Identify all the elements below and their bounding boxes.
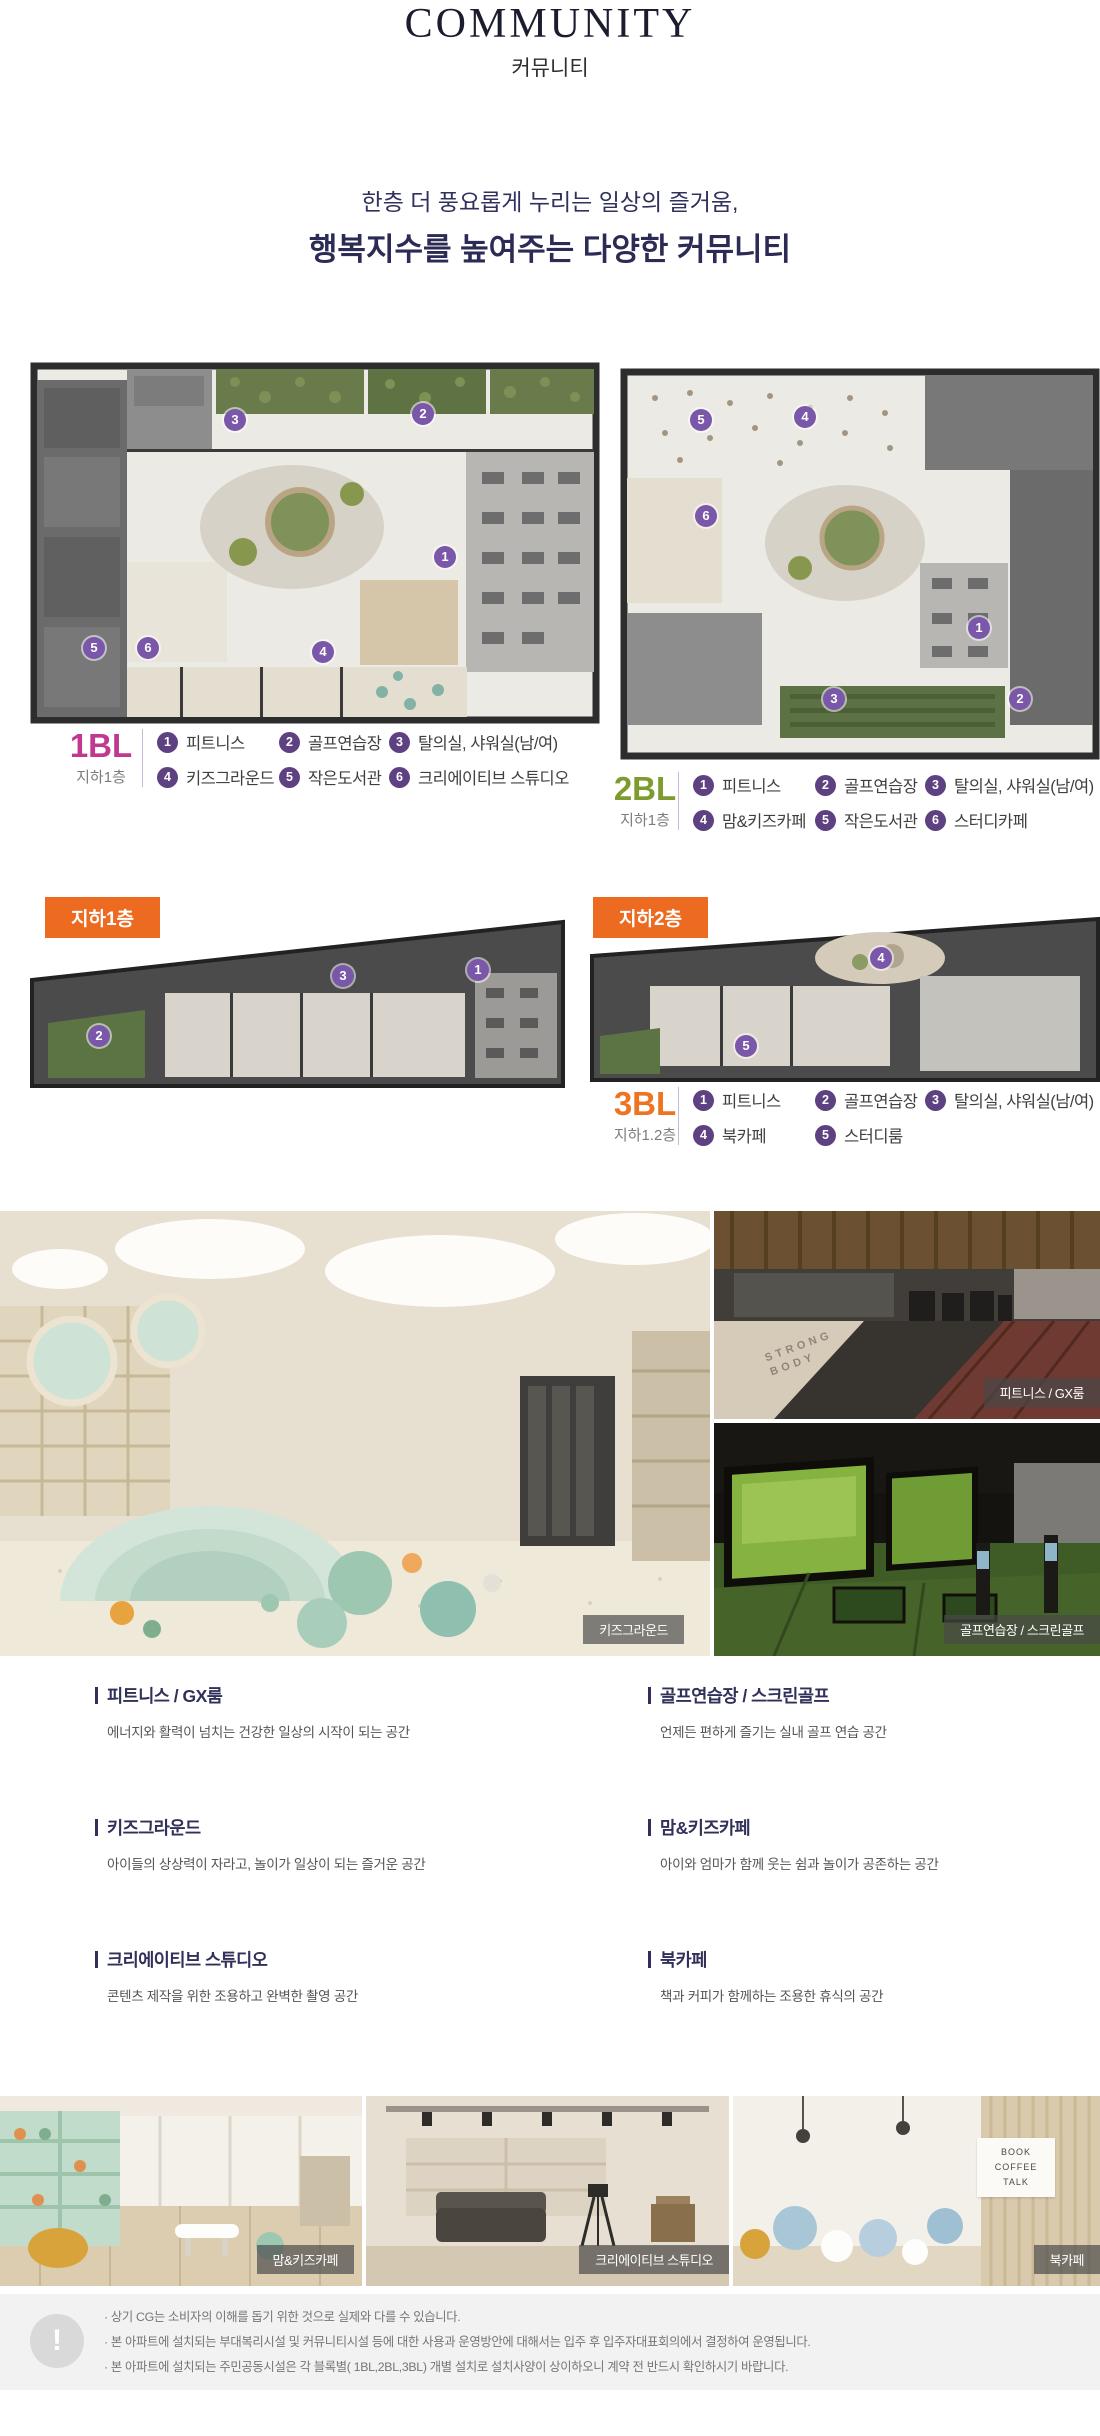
plan-marker: 3 bbox=[332, 965, 354, 987]
legend-item-number: 4 bbox=[693, 1125, 714, 1146]
photo-caption: 키즈그라운드 bbox=[583, 1615, 684, 1644]
legend-item-label: 피트니스 bbox=[722, 1088, 781, 1112]
legend-divider bbox=[678, 1087, 679, 1145]
legend-1bl-items: 1 피트니스 2 골프연습장 3 탈의실, 샤워실(남/여) 4 키즈그라운드 bbox=[157, 727, 569, 789]
plan-marker: 5 bbox=[83, 637, 105, 659]
plan-marker: 4 bbox=[794, 406, 816, 428]
legend-item-number: 2 bbox=[815, 775, 836, 796]
plan-marker: 4 bbox=[870, 947, 892, 969]
photo-golf: 골프연습장 / 스크린골프 bbox=[714, 1423, 1100, 1656]
legend-item-number: 2 bbox=[279, 732, 300, 753]
legend-item-number: 4 bbox=[157, 767, 178, 788]
floorplan-1bl-illustration bbox=[30, 362, 600, 724]
legend-2bl-head: 2BL 지하1층 bbox=[612, 770, 678, 832]
legend-item: 4 북카페 bbox=[693, 1123, 815, 1147]
legend-item-number: 5 bbox=[815, 1125, 836, 1146]
legend-3bl-head: 3BL 지하1.2층 bbox=[612, 1085, 678, 1147]
floorplan-3bl-b2-illustration bbox=[590, 916, 1100, 1084]
notice-line: · 본 아파트에 설치되는 주민공동시설은 각 블록별( 1BL,2BL,3BL… bbox=[104, 2355, 811, 2380]
plan-marker: 3 bbox=[823, 688, 845, 710]
notice-lines: · 상기 CG는 소비자의 이해를 돕기 위한 것으로 실제와 다를 수 있습니… bbox=[104, 2305, 811, 2380]
photo-mom-kids-cafe: 맘&키즈카페 bbox=[0, 2096, 362, 2286]
features-section: 피트니스 / GX룸 에너지와 활력이 넘치는 건강한 일상의 시작이 되는 공… bbox=[95, 1683, 1100, 2005]
legend-item-number: 1 bbox=[157, 732, 178, 753]
block-floor-2bl: 지하1층 bbox=[612, 809, 678, 830]
block-name-3bl: 3BL bbox=[612, 1087, 678, 1121]
notice-band: ! · 상기 CG는 소비자의 이해를 돕기 위한 것으로 실제와 다를 수 있… bbox=[0, 2294, 1100, 2390]
plan-marker: 5 bbox=[735, 1035, 757, 1057]
block-floor-1bl: 지하1층 bbox=[60, 766, 142, 787]
legend-item: 5 스터디룸 bbox=[815, 1123, 925, 1147]
photo-caption: 피트니스 / GX룸 bbox=[984, 1378, 1100, 1407]
legend-item-label: 작은도서관 bbox=[844, 808, 917, 832]
plan-marker: 2 bbox=[412, 403, 434, 425]
legend-item: 1 피트니스 bbox=[693, 773, 815, 797]
intro-line2: 행복지수를 높여주는 다양한 커뮤니티 bbox=[0, 224, 1100, 269]
photo-caption: 맘&키즈카페 bbox=[257, 2245, 354, 2274]
floorplan-3bl-b1: 3 1 2 bbox=[30, 918, 565, 1090]
title-bar bbox=[95, 1951, 98, 1968]
notice-line: · 본 아파트에 설치되는 부대복리시설 및 커뮤니티시설 등에 대한 사용과 … bbox=[104, 2330, 811, 2355]
photo-caption: 골프연습장 / 스크린골프 bbox=[944, 1615, 1100, 1644]
legend-item-number: 4 bbox=[693, 810, 714, 831]
floorplan-1bl: 1 2 3 4 5 6 bbox=[30, 362, 600, 724]
plan-marker: 1 bbox=[968, 617, 990, 639]
feature-description: 콘텐츠 제작을 위한 조용하고 완벽한 촬영 공간 bbox=[95, 1985, 648, 2005]
legend-2bl: 2BL 지하1층 1 피트니스 2 골프연습장 3 탈의실, 샤워실(남/여) bbox=[612, 770, 1100, 832]
legend-item-label: 피트니스 bbox=[186, 730, 245, 754]
feature-title: 골프연습장 / 스크린골프 bbox=[648, 1683, 1100, 1708]
legend-item-label: 골프연습장 bbox=[844, 773, 917, 797]
kids-ground-illustration bbox=[0, 1211, 710, 1656]
feature-title: 키즈그라운드 bbox=[95, 1815, 648, 1840]
legend-item: 2 골프연습장 bbox=[815, 1088, 925, 1112]
legend-item-label: 작은도서관 bbox=[308, 765, 381, 789]
feature-description: 언제든 편하게 즐기는 실내 골프 연습 공간 bbox=[648, 1721, 1100, 1741]
legend-item: 6 스터디카페 bbox=[925, 808, 1094, 832]
legend-3bl-items: 1 피트니스 2 골프연습장 3 탈의실, 샤워실(남/여) 4 북카페 bbox=[693, 1085, 1094, 1147]
feature-title: 크리에이티브 스튜디오 bbox=[95, 1947, 648, 1972]
book-cafe-sign: BOOK COFFEE TALK bbox=[977, 2138, 1055, 2197]
community-page: COMMUNITY 커뮤니티 한층 더 풍요롭게 누리는 일상의 즐거움, 행복… bbox=[0, 0, 1100, 2436]
feature-title-text: 크리에이티브 스튜디오 bbox=[107, 1947, 267, 1972]
legend-item: 3 탈의실, 샤워실(남/여) bbox=[925, 1088, 1094, 1112]
feature-title-text: 키즈그라운드 bbox=[107, 1815, 201, 1840]
plan-marker: 5 bbox=[690, 409, 712, 431]
legend-item: 2 골프연습장 bbox=[815, 773, 925, 797]
feature-title-text: 북카페 bbox=[660, 1947, 707, 1972]
feature-block: 맘&키즈카페 아이와 엄마가 함께 웃는 쉼과 놀이가 공존하는 공간 bbox=[648, 1815, 1100, 1947]
feature-title: 피트니스 / GX룸 bbox=[95, 1683, 648, 1708]
photo-book-cafe: BOOK COFFEE TALK 북카페 bbox=[733, 2096, 1100, 2286]
floorplan-2bl: 5 4 6 1 3 2 bbox=[620, 368, 1100, 760]
legend-item-number: 1 bbox=[693, 775, 714, 796]
legend-item-label: 스터디카페 bbox=[954, 808, 1027, 832]
floorplan-3bl-b1-illustration bbox=[30, 918, 565, 1090]
legend-divider bbox=[678, 772, 679, 830]
legend-item-number: 5 bbox=[815, 810, 836, 831]
legend-3bl: 3BL 지하1.2층 1 피트니스 2 골프연습장 3 탈의실, 샤워실(남/여… bbox=[612, 1085, 1100, 1147]
legend-item-label: 피트니스 bbox=[722, 773, 781, 797]
legend-item-label: 크리에이티브 스튜디오 bbox=[418, 765, 569, 789]
title-bar bbox=[95, 1819, 98, 1836]
photo-caption: 북카페 bbox=[1034, 2245, 1100, 2274]
plan-marker: 3 bbox=[224, 409, 246, 431]
legend-item-label: 키즈그라운드 bbox=[186, 765, 274, 789]
intro-line1: 한층 더 풍요롭게 누리는 일상의 즐거움, bbox=[0, 183, 1100, 217]
title-bar bbox=[648, 1687, 651, 1704]
feature-title-text: 골프연습장 / 스크린골프 bbox=[660, 1683, 829, 1708]
plan-marker: 2 bbox=[88, 1025, 110, 1047]
legend-item-label: 맘&키즈카페 bbox=[722, 808, 806, 832]
feature-description: 아이들의 상상력이 자라고, 놀이가 일상이 되는 즐거운 공간 bbox=[95, 1853, 648, 1873]
feature-description: 책과 커피가 함께하는 조용한 휴식의 공간 bbox=[648, 1985, 1100, 2005]
legend-item-label: 탈의실, 샤워실(남/여) bbox=[418, 730, 558, 754]
legend-item: 3 탈의실, 샤워실(남/여) bbox=[925, 773, 1094, 797]
plan-marker: 1 bbox=[434, 546, 456, 568]
legend-item-label: 스터디룸 bbox=[844, 1123, 903, 1147]
feature-block: 크리에이티브 스튜디오 콘텐츠 제작을 위한 조용하고 완벽한 촬영 공간 bbox=[95, 1947, 648, 2005]
plan-marker: 6 bbox=[137, 637, 159, 659]
title-bar bbox=[95, 1687, 98, 1704]
legend-item: 6 크리에이티브 스튜디오 bbox=[389, 765, 569, 789]
legend-item: 1 피트니스 bbox=[157, 730, 279, 754]
plan-marker: 6 bbox=[695, 505, 717, 527]
legend-1bl: 1BL 지하1층 1 피트니스 2 골프연습장 3 탈의실, 샤워실(남/여) bbox=[60, 727, 605, 789]
feature-description: 아이와 엄마가 함께 웃는 쉼과 놀이가 공존하는 공간 bbox=[648, 1853, 1100, 1873]
legend-item: 5 작은도서관 bbox=[815, 808, 925, 832]
legend-item-number: 3 bbox=[925, 775, 946, 796]
legend-item-number: 3 bbox=[389, 732, 410, 753]
photo-fitness: STRONG BODY 피트니스 / GX룸 bbox=[714, 1211, 1100, 1419]
legend-item-label: 북카페 bbox=[722, 1123, 766, 1147]
block-name-1bl: 1BL bbox=[60, 729, 142, 763]
feature-title: 맘&키즈카페 bbox=[648, 1815, 1100, 1840]
block-floor-3bl: 지하1.2층 bbox=[612, 1124, 678, 1145]
legend-item: 1 피트니스 bbox=[693, 1088, 815, 1112]
intro-tagline: 한층 더 풍요롭게 누리는 일상의 즐거움, 행복지수를 높여주는 다양한 커뮤… bbox=[0, 183, 1100, 269]
legend-item: 4 맘&키즈카페 bbox=[693, 808, 815, 832]
title-bar bbox=[648, 1951, 651, 1968]
photo-creative-studio: 크리에이티브 스튜디오 bbox=[366, 2096, 729, 2286]
legend-1bl-head: 1BL 지하1층 bbox=[60, 727, 142, 789]
legend-2bl-items: 1 피트니스 2 골프연습장 3 탈의실, 샤워실(남/여) 4 맘&키즈카페 bbox=[693, 770, 1094, 832]
page-title: COMMUNITY bbox=[0, 0, 1100, 48]
legend-item: 5 작은도서관 bbox=[279, 765, 389, 789]
legend-item-number: 3 bbox=[925, 1090, 946, 1111]
feature-block: 피트니스 / GX룸 에너지와 활력이 넘치는 건강한 일상의 시작이 되는 공… bbox=[95, 1683, 648, 1815]
title-bar bbox=[648, 1819, 651, 1836]
notice-line: · 상기 CG는 소비자의 이해를 돕기 위한 것으로 실제와 다를 수 있습니… bbox=[104, 2305, 811, 2330]
block-name-2bl: 2BL bbox=[612, 772, 678, 806]
legend-item: 3 탈의실, 샤워실(남/여) bbox=[389, 730, 569, 754]
legend-item-number: 1 bbox=[693, 1090, 714, 1111]
plan-marker: 4 bbox=[312, 641, 334, 663]
feature-title: 북카페 bbox=[648, 1947, 1100, 1972]
legend-item: 2 골프연습장 bbox=[279, 730, 389, 754]
feature-title-text: 피트니스 / GX룸 bbox=[107, 1683, 222, 1708]
feature-description: 에너지와 활력이 넘치는 건강한 일상의 시작이 되는 공간 bbox=[95, 1721, 648, 1741]
legend-item-label: 탈의실, 샤워실(남/여) bbox=[954, 1088, 1094, 1112]
feature-title-text: 맘&키즈카페 bbox=[660, 1815, 750, 1840]
feature-block: 북카페 책과 커피가 함께하는 조용한 휴식의 공간 bbox=[648, 1947, 1100, 2005]
plan-marker: 2 bbox=[1009, 688, 1031, 710]
legend-item-number: 6 bbox=[925, 810, 946, 831]
legend-item: 4 키즈그라운드 bbox=[157, 765, 279, 789]
legend-item-number: 2 bbox=[815, 1090, 836, 1111]
photo-kids-ground: 키즈그라운드 bbox=[0, 1211, 710, 1656]
floorplan-3bl-b2: 4 5 bbox=[590, 916, 1100, 1084]
plan-marker: 1 bbox=[467, 959, 489, 981]
legend-divider bbox=[142, 729, 143, 787]
feature-block: 키즈그라운드 아이들의 상상력이 자라고, 놀이가 일상이 되는 즐거운 공간 bbox=[95, 1815, 648, 1947]
legend-item-number: 5 bbox=[279, 767, 300, 788]
legend-item-number: 6 bbox=[389, 767, 410, 788]
legend-item-label: 골프연습장 bbox=[844, 1088, 917, 1112]
page-subtitle: 커뮤니티 bbox=[0, 52, 1100, 82]
legend-item-label: 탈의실, 샤워실(남/여) bbox=[954, 773, 1094, 797]
legend-item-label: 골프연습장 bbox=[308, 730, 381, 754]
feature-block: 골프연습장 / 스크린골프 언제든 편하게 즐기는 실내 골프 연습 공간 bbox=[648, 1683, 1100, 1815]
photo-caption: 크리에이티브 스튜디오 bbox=[579, 2245, 729, 2274]
exclamation-icon: ! bbox=[30, 2314, 84, 2368]
